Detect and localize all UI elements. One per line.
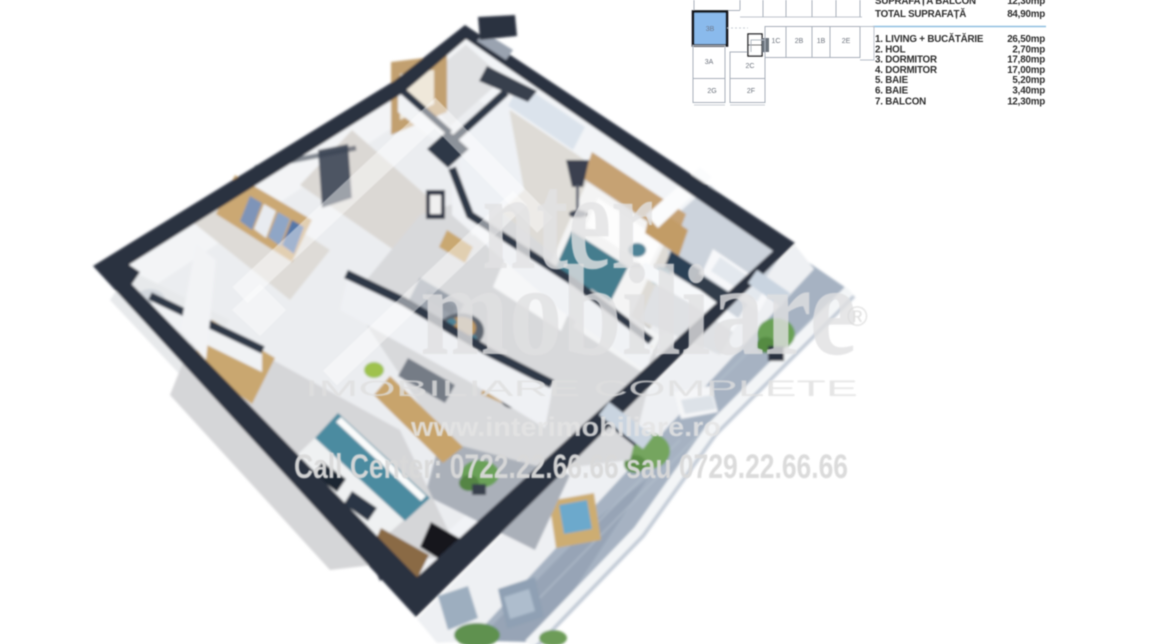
svg-text:2E: 2E (842, 38, 851, 45)
svg-text:84,90mp: 84,90mp (1007, 9, 1045, 20)
svg-text:2B: 2B (795, 38, 804, 45)
svg-text:3,40mp: 3,40mp (1012, 86, 1045, 97)
svg-text:7. BALCON: 7. BALCON (875, 97, 926, 108)
svg-text:2G: 2G (707, 88, 716, 95)
svg-text:1C: 1C (772, 38, 781, 45)
svg-text:3B: 3B (706, 26, 715, 33)
svg-text:www.interimobiliare.ro: www.interimobiliare.ro (410, 412, 721, 442)
svg-text:12,30mp: 12,30mp (1007, 97, 1045, 108)
svg-text:®: ® (847, 301, 868, 332)
svg-text:TOTAL SUPRAFAȚĂ: TOTAL SUPRAFAȚĂ (875, 9, 966, 20)
svg-text:mobiliare: mobiliare (420, 239, 857, 383)
svg-text:Call Center: 0722.22.66.66 sau: Call Center: 0722.22.66.66 sau 0729.22.6… (294, 448, 848, 486)
svg-text:12,30mp: 12,30mp (1007, 0, 1045, 7)
svg-text:2C: 2C (746, 63, 755, 70)
svg-text:6. BAIE: 6. BAIE (875, 86, 909, 97)
svg-text:1B: 1B (817, 38, 826, 45)
svg-text:2F: 2F (747, 88, 755, 95)
svg-text:IMOBILIARE COMPLETE: IMOBILIARE COMPLETE (305, 376, 858, 401)
svg-text:SUPRAFAȚA BALCON: SUPRAFAȚA BALCON (875, 0, 976, 7)
svg-text:3A: 3A (705, 59, 714, 66)
